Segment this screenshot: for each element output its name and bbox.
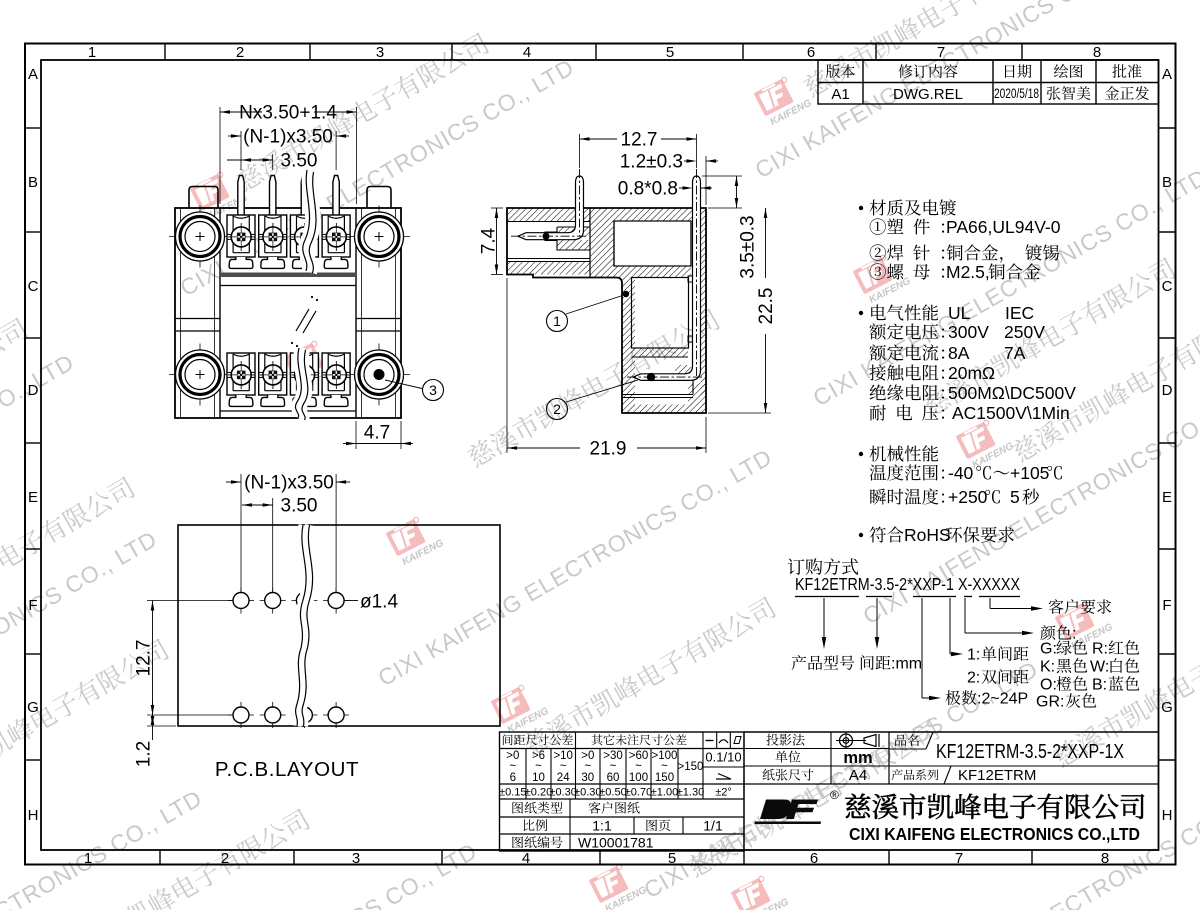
svg-text:C: C: [1162, 278, 1173, 295]
svg-text:±0.70: ±0.70: [625, 786, 652, 798]
svg-text:E: E: [1162, 489, 1172, 506]
svg-text:G:: G:: [1040, 641, 1057, 658]
svg-text:~: ~: [610, 761, 617, 773]
svg-text:RoHS: RoHS: [904, 525, 951, 545]
svg-text:±0.30: ±0.30: [574, 786, 601, 798]
svg-text:3.50: 3.50: [281, 496, 318, 517]
svg-text:±0.20: ±0.20: [525, 786, 552, 798]
svg-text:~: ~: [560, 761, 567, 773]
svg-text:IEC: IEC: [1005, 303, 1034, 323]
svg-text:P.C.B.LAYOUT: P.C.B.LAYOUT: [215, 758, 359, 781]
svg-text:W10001781: W10001781: [578, 834, 654, 850]
svg-text:0.8*0.8: 0.8*0.8: [618, 179, 678, 200]
svg-text:1: 1: [553, 313, 561, 329]
svg-text:C: C: [28, 278, 39, 295]
svg-text:A: A: [28, 66, 38, 83]
svg-text:60: 60: [607, 772, 620, 784]
svg-text:4.7: 4.7: [364, 423, 390, 444]
svg-text:GR:: GR:: [1036, 694, 1064, 711]
svg-text:0.1/10: 0.1/10: [705, 750, 741, 765]
svg-text:~: ~: [535, 761, 542, 773]
svg-text:A4: A4: [849, 767, 867, 784]
svg-text:6: 6: [807, 44, 815, 61]
svg-text:CIXI KAIFENG ELECTRONICS CO.,: CIXI KAIFENG ELECTRONICS CO., LTD: [79, 838, 482, 910]
svg-text:100: 100: [629, 772, 648, 784]
svg-text:1: 1: [84, 850, 92, 867]
svg-text:150: 150: [655, 772, 674, 784]
svg-text:2:: 2:: [967, 670, 980, 687]
svg-text:H: H: [1162, 807, 1173, 824]
svg-text:O:: O:: [1040, 677, 1057, 694]
svg-text:~: ~: [584, 761, 591, 773]
svg-text::: :: [1072, 626, 1076, 643]
svg-text:CIXI KAIFENG ELECTRONICS CO.,L: CIXI KAIFENG ELECTRONICS CO.,LTD: [849, 824, 1140, 844]
svg-text:A: A: [1162, 66, 1172, 83]
svg-text:300V: 300V: [948, 322, 989, 342]
svg-text:KF12ETRM-3.5-2*XXP-1 X-XXXXX: KF12ETRM-3.5-2*XXP-1 X-XXXXX: [795, 574, 1020, 594]
svg-text:5: 5: [668, 850, 676, 867]
svg-text:3.5±0.3: 3.5±0.3: [738, 215, 759, 278]
svg-text:KF12ETRM: KF12ETRM: [958, 767, 1036, 784]
svg-text:R:: R:: [1092, 641, 1108, 658]
svg-text:1:: 1:: [967, 647, 980, 664]
svg-text:B: B: [1162, 174, 1172, 191]
svg-text:CIXI KAIFENG ELECTRONICS CO.,: CIXI KAIFENG ELECTRONICS CO., LTD: [374, 444, 777, 692]
svg-text:(N-1)x3.50: (N-1)x3.50: [244, 473, 334, 494]
svg-text:5: 5: [666, 44, 674, 61]
svg-text:6: 6: [510, 772, 516, 784]
svg-text:F: F: [28, 597, 37, 614]
svg-text:ø1.4: ø1.4: [360, 592, 398, 613]
svg-text:12.7: 12.7: [621, 130, 658, 151]
svg-text:2020/5/18: 2020/5/18: [994, 86, 1039, 101]
svg-text:2: 2: [221, 850, 229, 867]
svg-text:-40: -40: [948, 463, 974, 483]
svg-text:D: D: [1162, 382, 1173, 399]
svg-text:±0.15: ±0.15: [499, 786, 526, 798]
svg-text:2: 2: [236, 44, 244, 61]
svg-text:2: 2: [553, 401, 561, 417]
svg-text:~: ~: [635, 761, 642, 773]
svg-text:21.9: 21.9: [590, 439, 627, 460]
svg-text:8A: 8A: [948, 343, 970, 363]
svg-text:4: 4: [522, 850, 530, 867]
svg-text:CIXI KAIFENG ELECTRONICS CO.,: CIXI KAIFENG ELECTRONICS CO., LTD: [0, 349, 78, 597]
svg-text:8: 8: [1093, 44, 1101, 61]
svg-text:24: 24: [557, 772, 570, 784]
svg-text:K:: K:: [1040, 659, 1055, 676]
svg-text:7.4: 7.4: [479, 227, 500, 254]
svg-text:6: 6: [810, 850, 818, 867]
svg-text:A1: A1: [831, 86, 849, 103]
svg-text::mm: :mm: [891, 656, 922, 673]
svg-text:±0.30: ±0.30: [549, 786, 576, 798]
svg-text:D: D: [28, 382, 39, 399]
svg-text:DWG.REL: DWG.REL: [893, 86, 963, 103]
svg-text:B: B: [28, 174, 38, 191]
svg-text:M2.5,: M2.5,: [946, 262, 990, 282]
svg-text:1:1: 1:1: [592, 817, 612, 833]
svg-text:B:: B:: [1092, 677, 1107, 694]
svg-text:4: 4: [523, 44, 531, 61]
svg-text:W:: W:: [1090, 659, 1109, 676]
svg-text:250V: 250V: [1004, 322, 1045, 342]
svg-text:1: 1: [88, 44, 96, 61]
svg-text:H: H: [28, 807, 39, 824]
svg-text:±2°: ±2°: [715, 786, 732, 798]
svg-text:1.2±0.3: 1.2±0.3: [620, 152, 683, 173]
svg-text:±0.50: ±0.50: [599, 786, 626, 798]
svg-text:AC1500V\1Min: AC1500V\1Min: [952, 403, 1070, 423]
svg-text:G: G: [1161, 699, 1173, 716]
svg-text:7A: 7A: [1004, 343, 1026, 363]
svg-text:10: 10: [532, 772, 545, 784]
svg-text:PA66,UL94V-0: PA66,UL94V-0: [946, 217, 1061, 237]
svg-text:Nx3.50+1.4: Nx3.50+1.4: [239, 103, 337, 124]
svg-text:7: 7: [955, 850, 963, 867]
svg-text:UL: UL: [948, 303, 971, 323]
svg-text:20mΩ: 20mΩ: [948, 363, 995, 383]
svg-text:12.7: 12.7: [134, 640, 155, 677]
svg-text:mm: mm: [843, 749, 872, 767]
svg-text:3: 3: [376, 44, 384, 61]
svg-text:(N-1)x3.50: (N-1)x3.50: [243, 127, 333, 148]
svg-text:KF12ETRM-3.5-2*XXP-1X: KF12ETRM-3.5-2*XXP-1X: [936, 741, 1124, 763]
svg-text:F: F: [1162, 597, 1171, 614]
svg-text:3: 3: [352, 850, 360, 867]
svg-text::2~24P: :2~24P: [977, 691, 1028, 708]
svg-text:+105: +105: [1010, 463, 1049, 483]
svg-text:1/1: 1/1: [703, 817, 723, 833]
svg-text:>150: >150: [678, 761, 704, 773]
svg-text:~: ~: [509, 761, 516, 773]
svg-text:+250: +250: [948, 487, 988, 507]
svg-text:G: G: [27, 699, 39, 716]
svg-text:30: 30: [581, 772, 594, 784]
svg-text:3: 3: [429, 382, 437, 398]
svg-text:3.50: 3.50: [281, 151, 318, 172]
svg-text:±1.00: ±1.00: [651, 786, 678, 798]
svg-text:8: 8: [1101, 850, 1109, 867]
svg-text:~: ~: [661, 761, 668, 773]
svg-text:±1.30: ±1.30: [677, 786, 704, 798]
svg-text:E: E: [28, 489, 38, 506]
svg-text:5: 5: [1010, 487, 1020, 507]
svg-text:22.5: 22.5: [756, 288, 777, 325]
svg-text:1.2: 1.2: [134, 741, 155, 767]
svg-text:500MΩ\DC500V: 500MΩ\DC500V: [948, 383, 1076, 403]
svg-text:®: ®: [830, 788, 839, 802]
svg-text:7: 7: [937, 44, 945, 61]
